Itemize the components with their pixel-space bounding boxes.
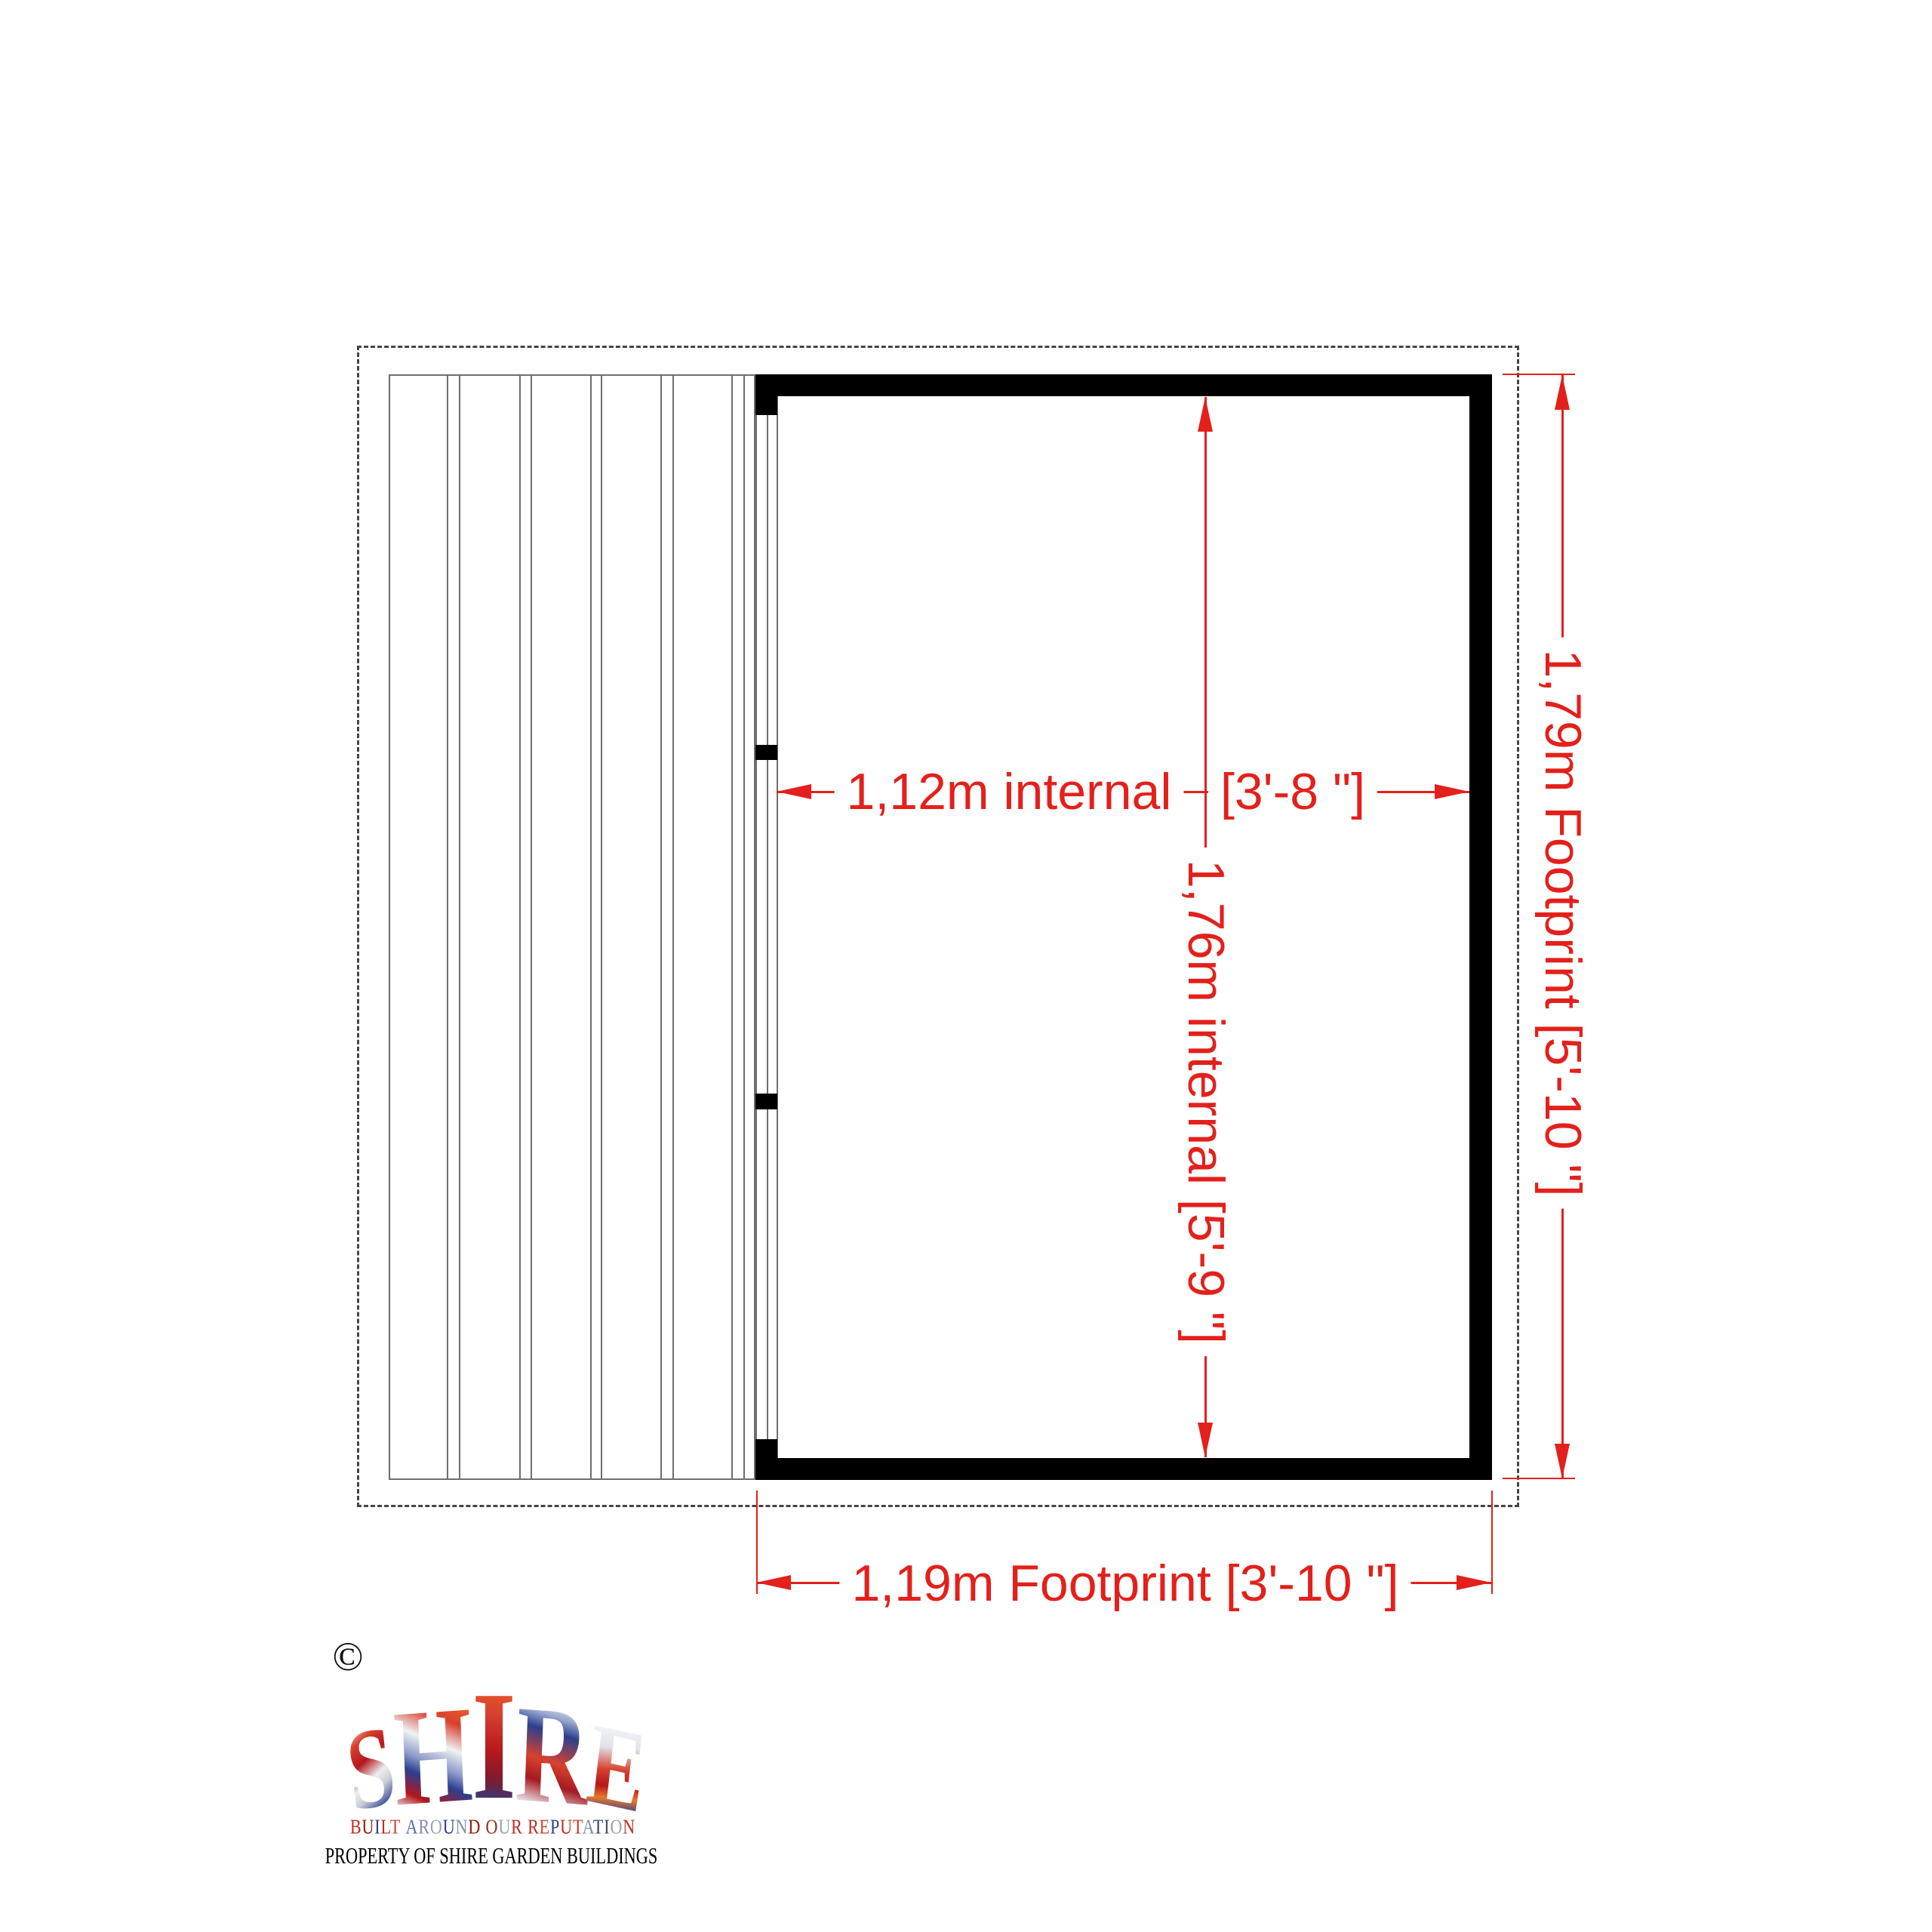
arrowhead-right-icon [1435,784,1469,799]
tagline-letter: T [390,1816,401,1838]
tagline-letter: U [443,1816,456,1838]
brand-letter: R [514,1697,592,1816]
arrowhead-left-icon [756,1575,791,1590]
tagline-letter: O [610,1816,623,1838]
tagline-letter: I [604,1816,610,1838]
tagline-letter: D [468,1816,481,1838]
deck-board-line [731,374,733,1480]
tagline-letter: N [623,1816,635,1838]
tagline-letter: E [540,1816,550,1838]
logo-tagline: BUILT AROUND OUR REPUTATION [350,1816,635,1839]
tagline-letter: T [593,1816,604,1838]
tagline-letter: N [456,1816,469,1838]
door-jamb-top [755,374,777,415]
deck-board-line [672,374,674,1480]
arrowhead-right-icon [1457,1575,1491,1590]
internal-depth-label: 1,76m internal [5'-9 "] [1176,848,1236,1356]
tagline-letter: B [350,1816,362,1838]
wall-right [1469,374,1492,1480]
tagline-letter: O [430,1816,443,1838]
property-line: PROPERTY OF SHIRE GARDEN BUILDINGS [325,1842,658,1869]
veranda-deck [389,374,755,1480]
footprint-width-label: 1,19m Footprint [3'-10 "] [839,1553,1411,1614]
deck-board-line [447,374,448,1480]
copyright-symbol: © [332,1636,363,1677]
door-frame-line [767,374,768,1480]
tagline-letter: U [498,1816,511,1838]
wall-bottom [755,1458,1492,1480]
arrowhead-down-icon [1555,1444,1570,1478]
internal-width-metric-label: 1,12m internal [835,761,1184,822]
arrowhead-up-icon [1555,375,1570,410]
brand-letter: E [584,1715,651,1821]
tagline-letter: R [418,1816,430,1838]
door-frame-line [755,374,757,1480]
extension-line [1491,1491,1493,1594]
door-mullion-lower [755,1094,777,1109]
tagline-letter: O [486,1816,499,1838]
tagline-letter: T [573,1816,583,1838]
arrowhead-left-icon [777,784,811,799]
tagline-letter: I [374,1816,380,1838]
tagline-letter: P [550,1816,560,1838]
shire-logo: SHIRE [347,1685,646,1813]
door-mullion-upper [755,745,777,760]
deck-board-line [743,374,745,1480]
wall-top [755,374,1492,396]
tagline-letter: R [511,1816,523,1838]
deck-board-line [531,374,532,1480]
tagline-letter: U [560,1816,573,1838]
floorplan-canvas: { "document_type": "shed floor plan draw… [0,0,1932,1932]
arrowhead-up-icon [1198,397,1213,432]
deck-board-line [660,374,662,1480]
internal-width-imperial-label: [3'-8 "] [1208,761,1377,822]
tagline-letter: R [528,1816,540,1838]
door-jamb-bottom [755,1439,777,1480]
deck-board-line [459,374,460,1480]
footprint-depth-label: 1,79m Footprint [5'-10 "] [1533,637,1593,1208]
brand-letter: S [343,1717,399,1820]
brand-letter: I [472,1682,516,1810]
deck-board-line [601,374,602,1480]
deck-board-line [590,374,592,1480]
arrowhead-down-icon [1198,1423,1213,1457]
tagline-letter: A [583,1816,593,1838]
brand-letter: H [392,1697,474,1815]
tagline-letter: A [406,1816,419,1838]
door-frame-line [777,374,778,1480]
tagline-letter: U [361,1816,374,1838]
tagline-letter: L [381,1816,390,1838]
deck-board-line [519,374,521,1480]
